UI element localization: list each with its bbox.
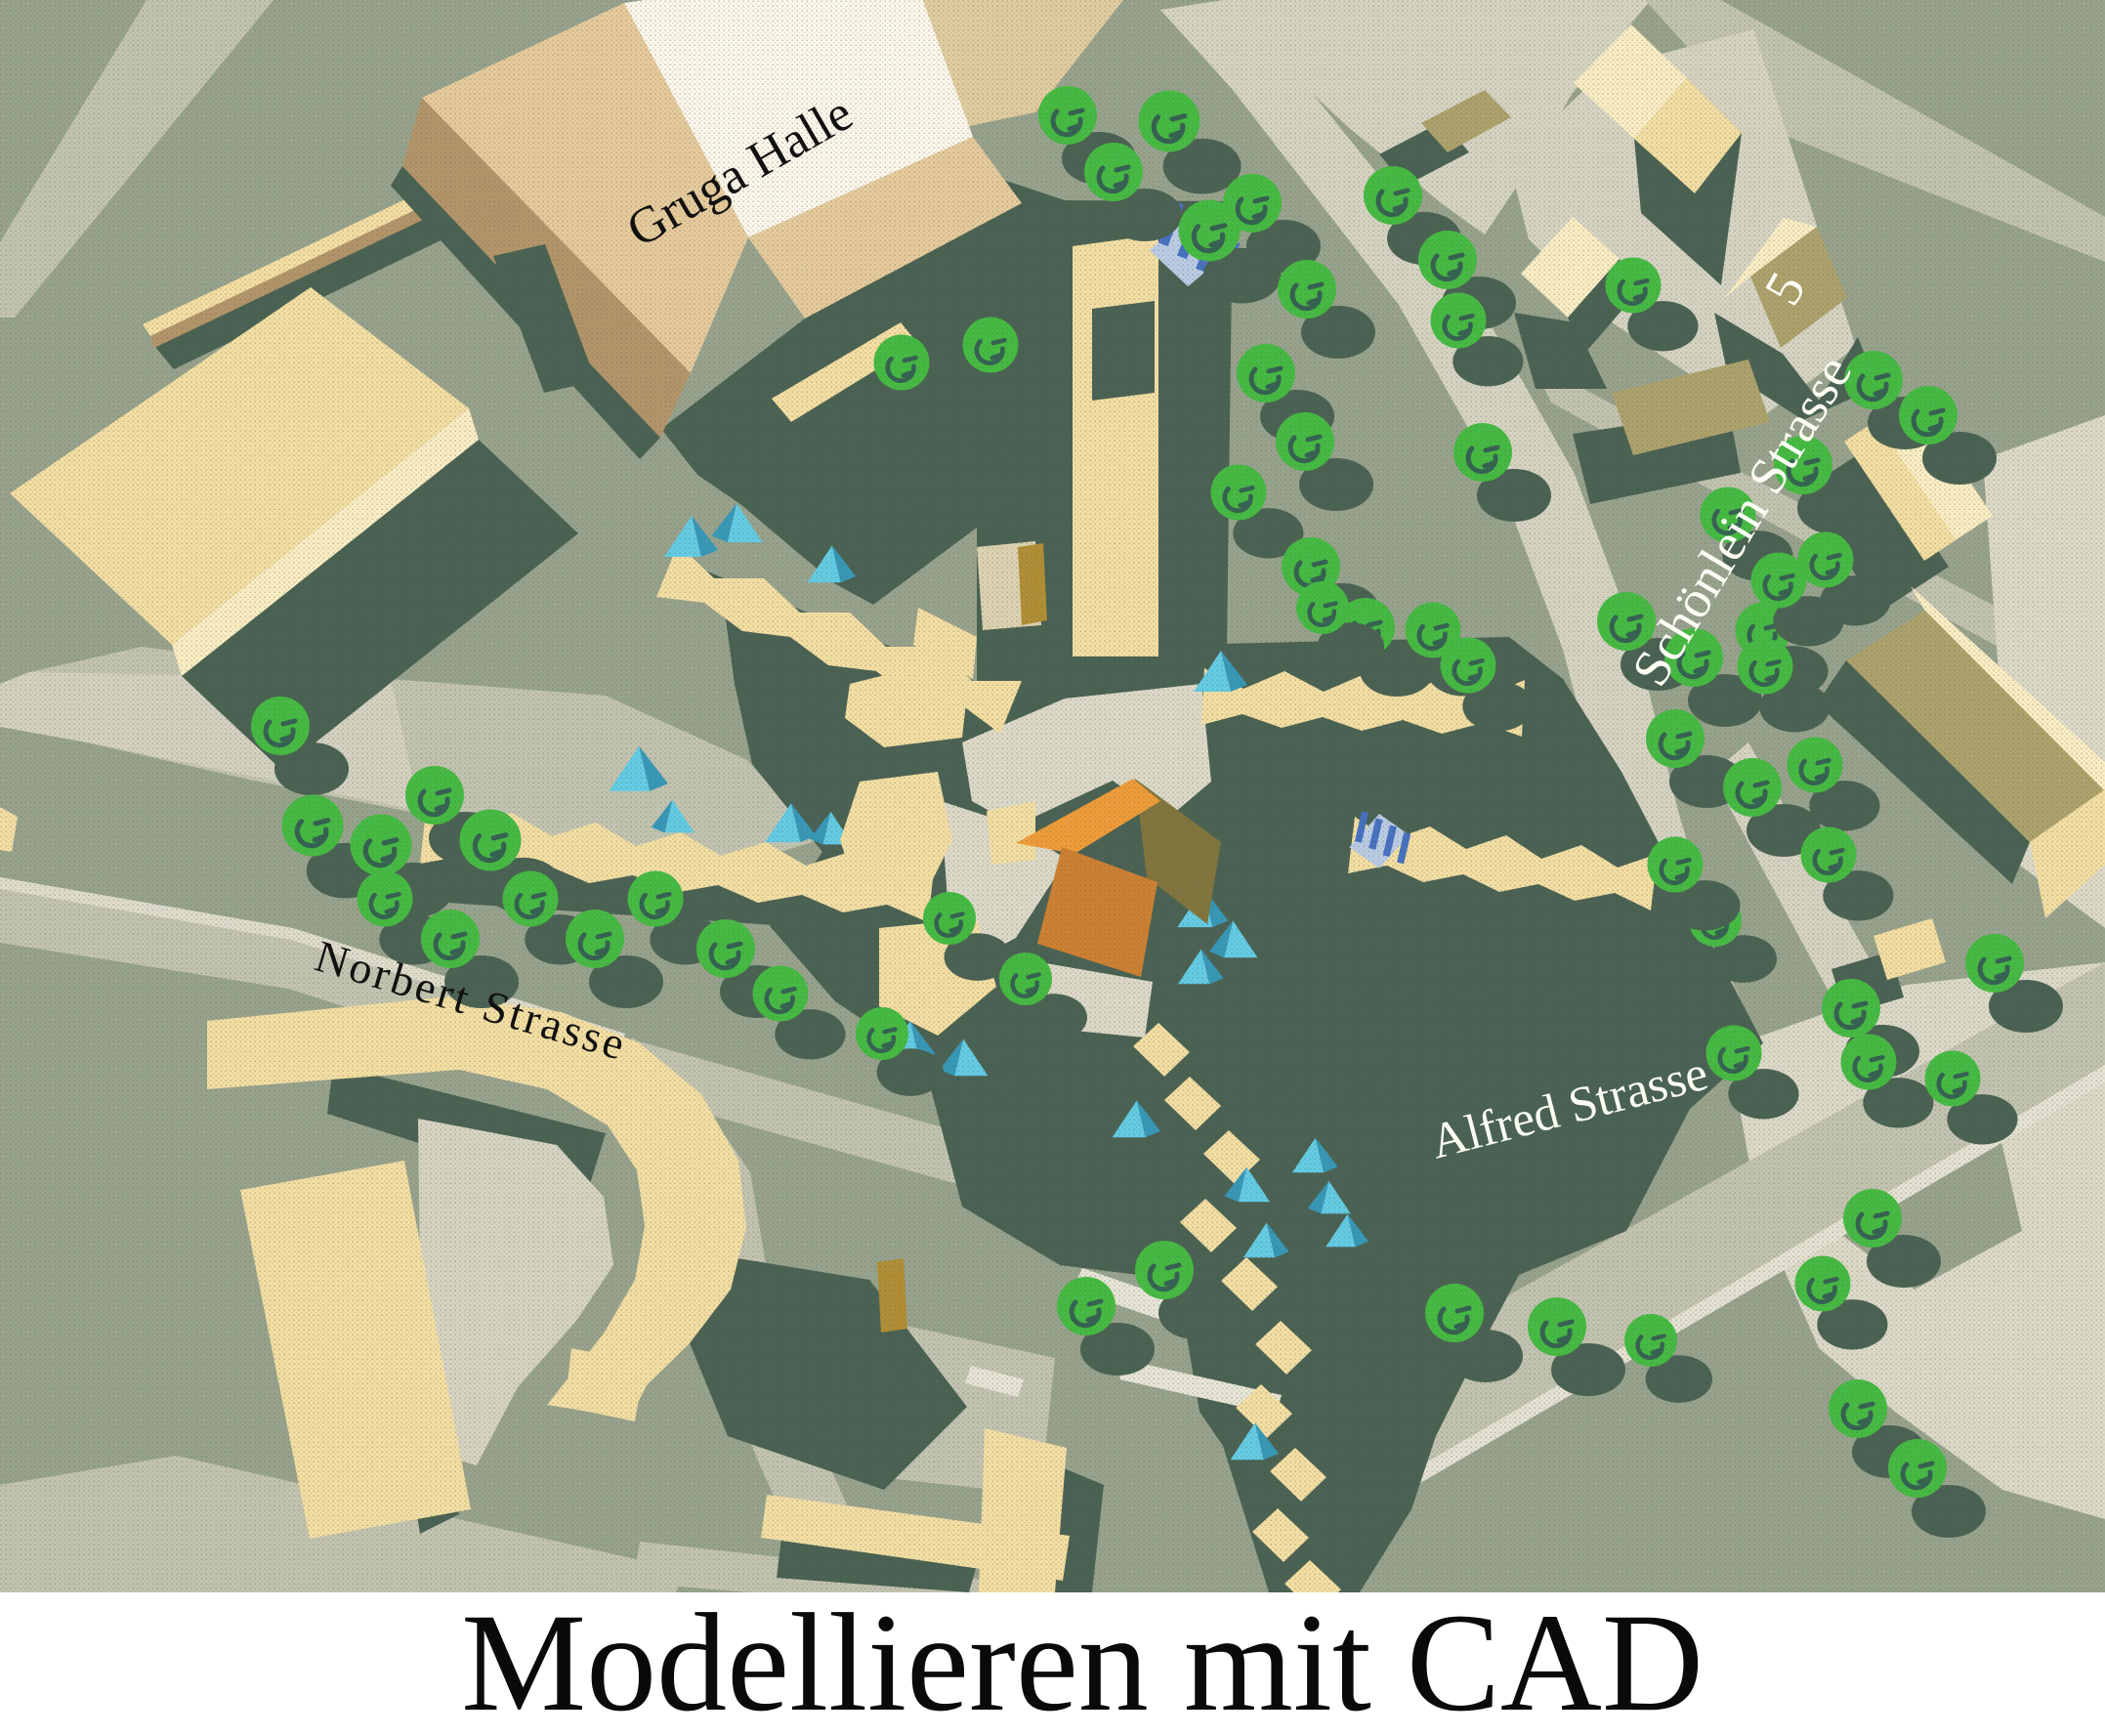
svg-text:Modellieren mit CAD: Modellieren mit CAD [461, 1586, 1704, 1736]
